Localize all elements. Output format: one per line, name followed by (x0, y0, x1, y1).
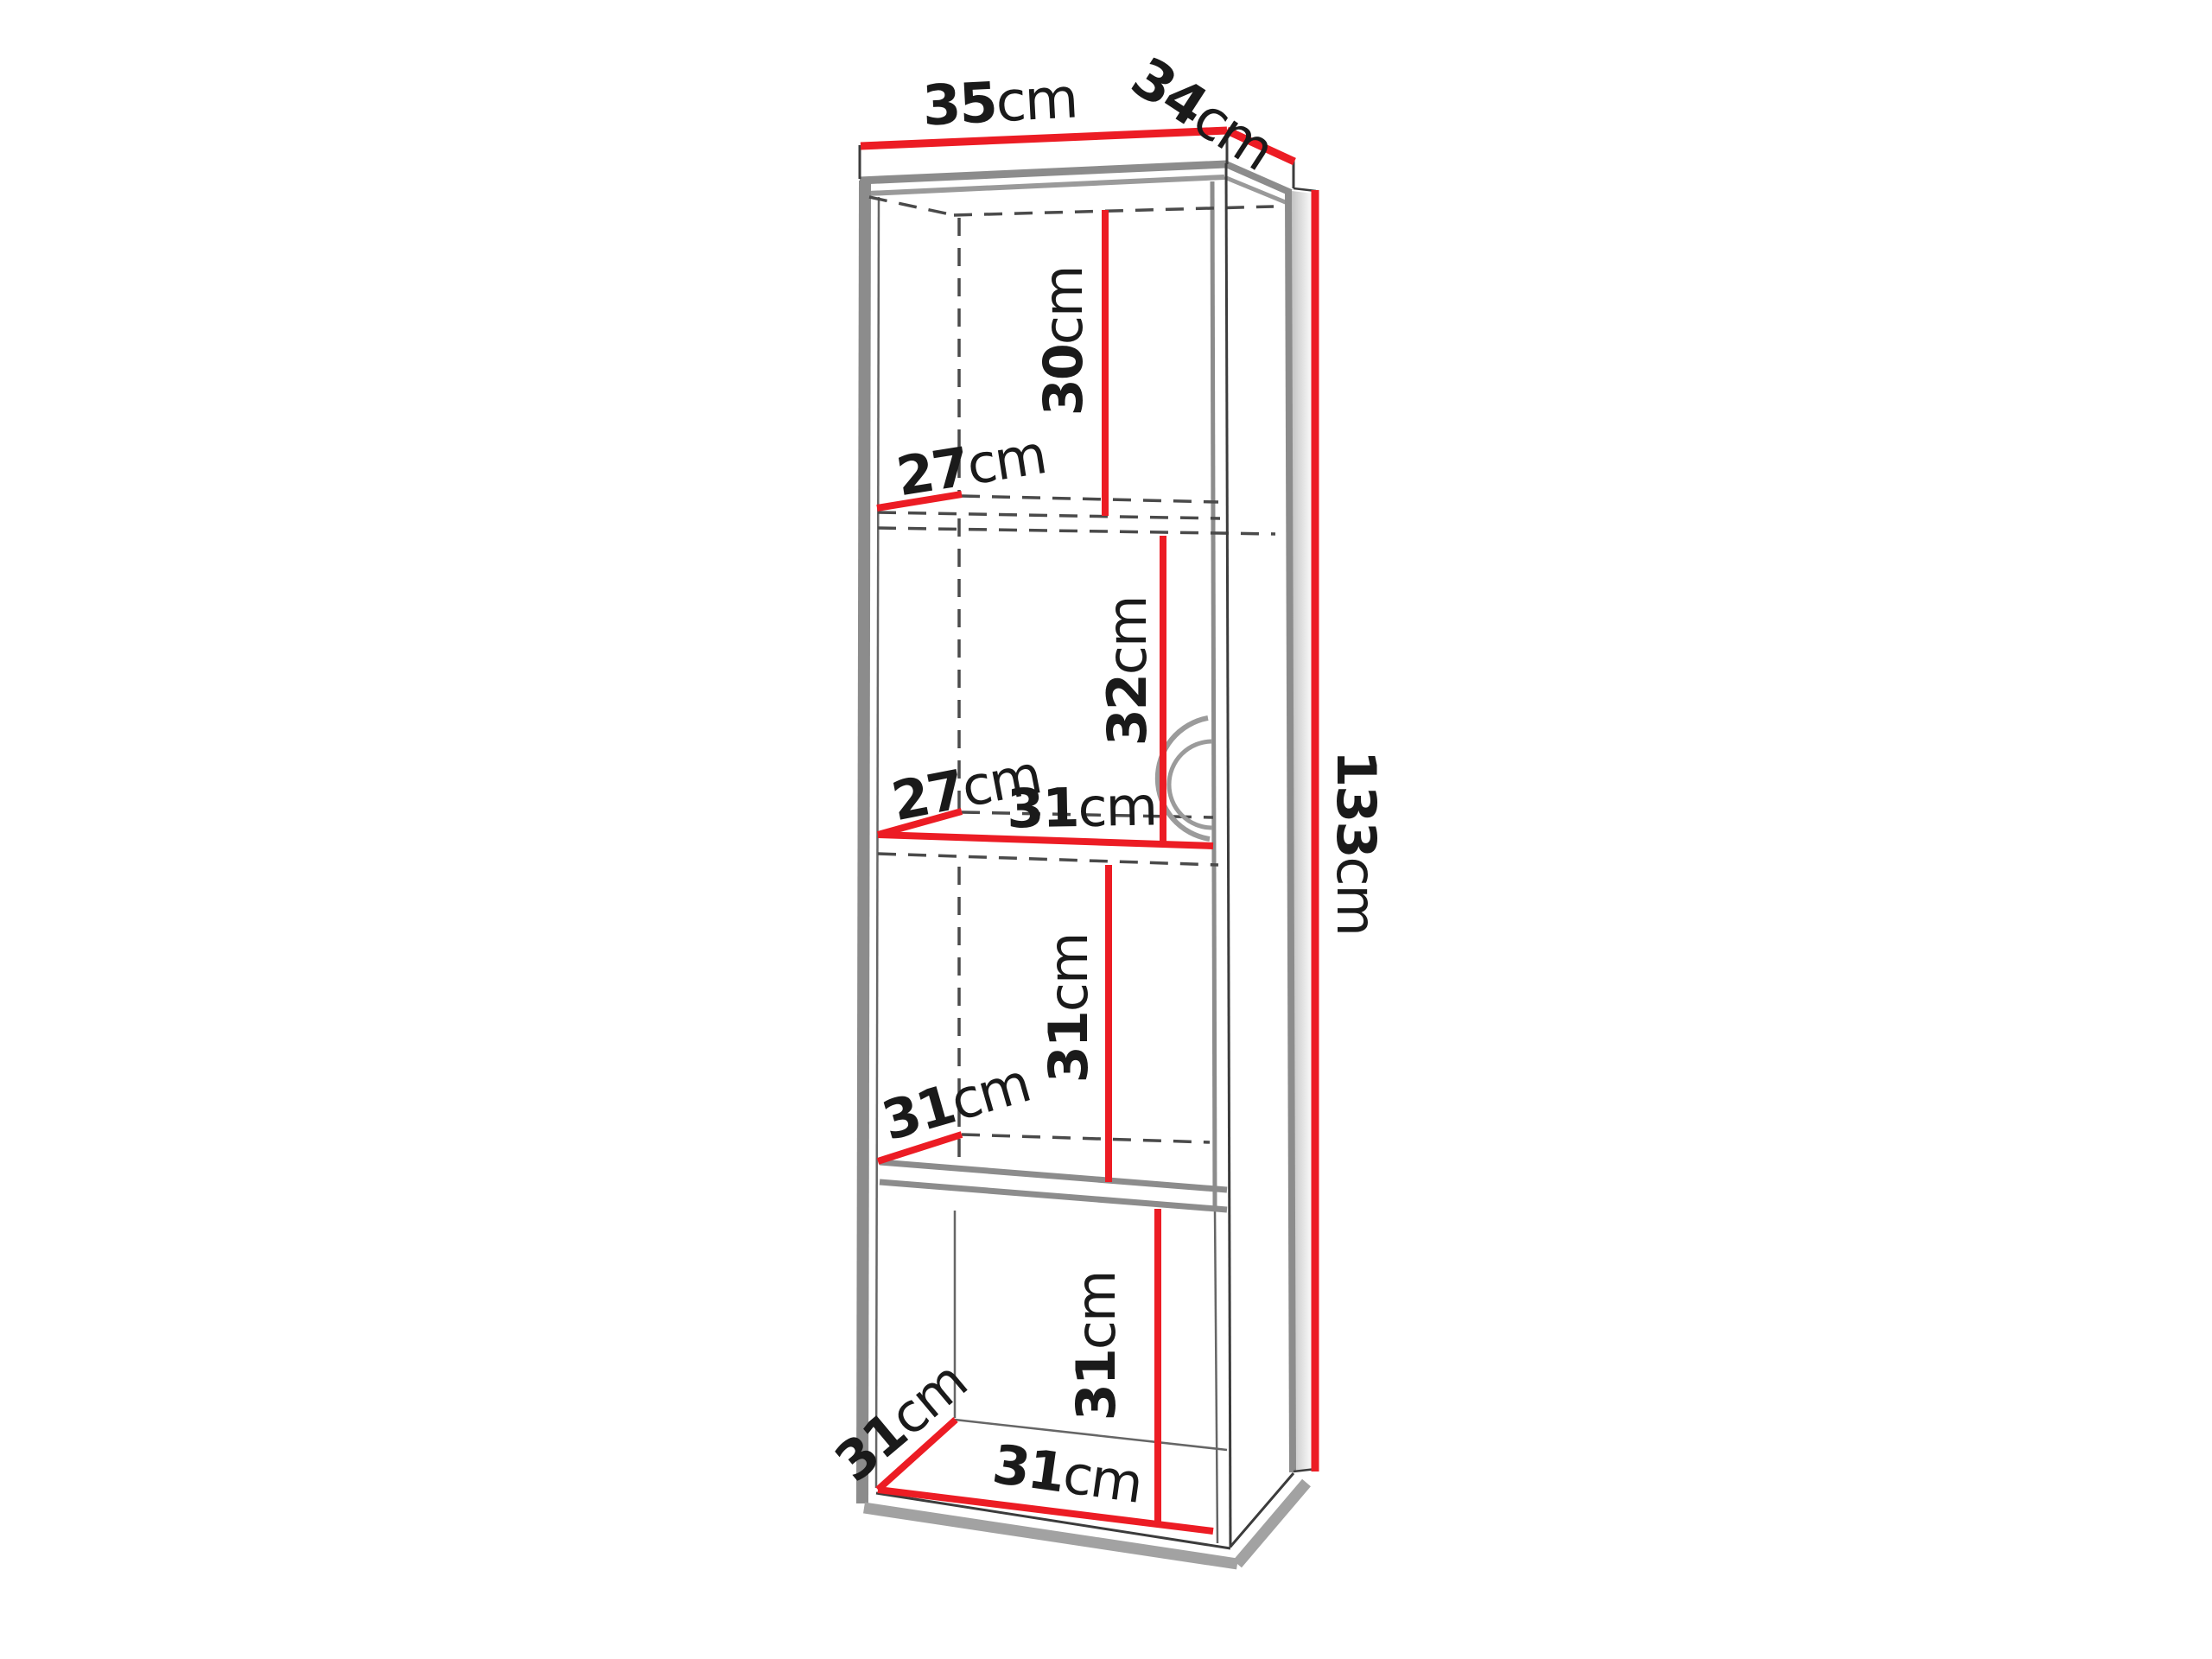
left-wall (862, 181, 865, 1503)
label-comp3-height: 31cm (1037, 934, 1100, 1084)
label-total-height: 133cm (1325, 750, 1388, 935)
label-comp2-height: 32cm (1096, 597, 1159, 747)
diagram-canvas: 35cm 34cm 133cm 30cm 27cm 32cm 27cm 31cm… (0, 0, 2212, 1659)
label-comp4-height: 31cm (1065, 1272, 1128, 1421)
label-comp2-width: 31cm (1007, 775, 1157, 841)
right-side-face (1226, 164, 1294, 1547)
door-right-edge (1212, 181, 1215, 1209)
label-top-width: 35cm (921, 67, 1078, 138)
cabinet-dimension-drawing: 35cm 34cm 133cm 30cm 27cm 32cm 27cm 31cm… (0, 0, 2212, 1659)
label-comp1-height: 30cm (1032, 267, 1095, 416)
right-back-edge (1288, 191, 1293, 1472)
